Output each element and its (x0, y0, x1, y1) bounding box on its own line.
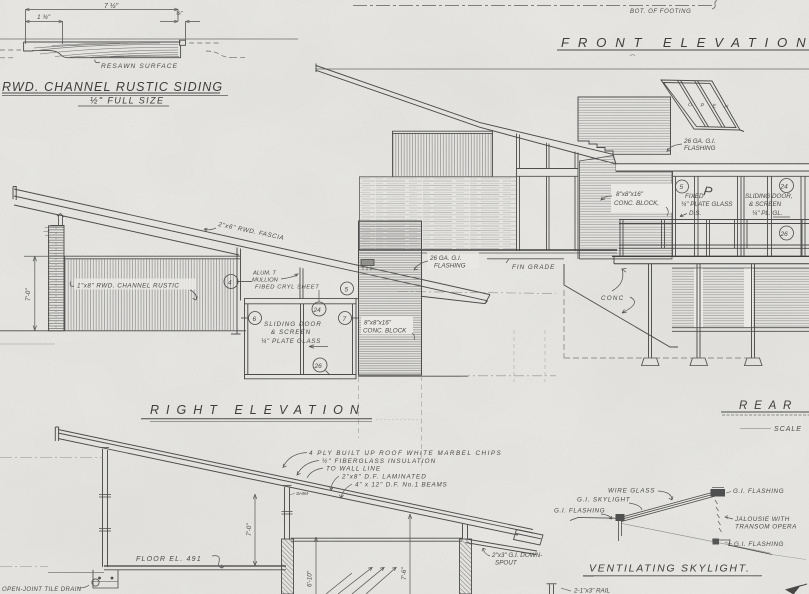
svg-text:MULLION: MULLION (252, 278, 279, 284)
svg-text:BOT. OF FOOTING: BOT. OF FOOTING (630, 9, 691, 15)
svg-text:¼" PL. GL.: ¼" PL. GL. (752, 210, 783, 217)
svg-text:FIXED: FIXED (685, 193, 704, 200)
svg-text:FRONT ELEVATION: FRONT ELEVATION (561, 35, 809, 50)
svg-text:½" FULL SIZE: ½" FULL SIZE (90, 96, 164, 106)
svg-text:SPOUT: SPOUT (495, 560, 518, 567)
svg-text:24: 24 (780, 184, 789, 191)
svg-text:FLOOR EL. 491: FLOOR EL. 491 (136, 556, 202, 563)
svg-text:FIN GRADE: FIN GRADE (512, 264, 555, 271)
svg-text:4" x 12" D.F. No.1 BEAMS: 4" x 12" D.F. No.1 BEAMS (355, 482, 448, 489)
svg-text:SCALE: SCALE (774, 426, 802, 433)
svg-text:2"x3" G.I. DOWN-: 2"x3" G.I. DOWN- (491, 552, 542, 559)
svg-text:G.I. SKYLIGHT: G.I. SKYLIGHT (577, 497, 631, 504)
svg-text:¼" PLATE GLASS: ¼" PLATE GLASS (681, 201, 733, 208)
svg-text:26: 26 (780, 231, 789, 238)
svg-text:7'-0": 7'-0" (246, 523, 253, 536)
svg-text:2-1"x3" RAIL: 2-1"x3" RAIL (573, 588, 610, 594)
svg-text:& SCREEN: & SCREEN (749, 201, 782, 208)
svg-text:G.I. FLASHING: G.I. FLASHING (554, 508, 605, 515)
svg-text:REAR: REAR (739, 400, 798, 412)
svg-text:SLIDING DOOR: SLIDING DOOR (264, 321, 322, 328)
svg-text:5: 5 (345, 287, 349, 294)
svg-text:G.I. FLASHING: G.I. FLASHING (733, 488, 784, 495)
svg-text:7: 7 (343, 316, 347, 323)
svg-text:½" FIBERGLASS INSULATION: ½" FIBERGLASS INSULATION (322, 457, 436, 465)
svg-text:8"x8"x16": 8"x8"x16" (616, 191, 644, 198)
svg-text:26: 26 (314, 363, 323, 370)
svg-text:4 PLY BUILT UP ROOF WHITE MAR: 4 PLY BUILT UP ROOF WHITE MARBEL CHIPS (309, 450, 502, 457)
svg-text:VENTILATING SKYLIGHT.: VENTILATING SKYLIGHT. (589, 563, 751, 575)
svg-text:RESAWN SURFACE: RESAWN SURFACE (101, 63, 178, 70)
svg-text:5: 5 (680, 184, 684, 191)
svg-text:4: 4 (228, 280, 232, 287)
svg-text:TO WALL LINE: TO WALL LINE (326, 466, 381, 473)
svg-text:& SCREEN: & SCREEN (271, 329, 311, 336)
svg-text:SHIM: SHIM (296, 491, 308, 497)
svg-text:FIBED CRYL SHEET: FIBED CRYL SHEET (255, 285, 319, 291)
svg-text:8"x8"x16": 8"x8"x16" (364, 320, 392, 327)
svg-text:D.S.: D.S. (689, 210, 701, 217)
svg-text:7'-0": 7'-0" (25, 288, 32, 301)
svg-text:RWD. CHANNEL RUSTIC SIDING: RWD. CHANNEL RUSTIC SIDING (2, 80, 223, 94)
svg-text:⅜": ⅜" (176, 11, 183, 17)
svg-text:FLASHING: FLASHING (434, 263, 466, 270)
svg-text:26 GA. G.I.: 26 GA. G.I. (429, 255, 462, 262)
svg-text:RIGHT ELEVATION: RIGHT ELEVATION (150, 403, 366, 417)
svg-text:CONC: CONC (601, 295, 624, 302)
svg-text:WIRE GLASS: WIRE GLASS (608, 488, 655, 495)
svg-text:TRANSOM OPERA: TRANSOM OPERA (735, 524, 797, 531)
svg-text:SLIDING DOOR,: SLIDING DOOR, (745, 193, 793, 200)
svg-text:6: 6 (253, 316, 257, 323)
svg-text:JALOUSIE WITH: JALOUSIE WITH (734, 516, 790, 523)
svg-text:1 ¾": 1 ¾" (37, 14, 51, 21)
svg-text:FLASHING: FLASHING (684, 145, 716, 152)
svg-text:¼" PLATE GLASS: ¼" PLATE GLASS (261, 338, 321, 345)
svg-text:CONC. BLOCK,: CONC. BLOCK, (614, 200, 659, 207)
svg-text:2"x8" D.F. LAMINATED: 2"x8" D.F. LAMINATED (341, 474, 427, 481)
svg-text:7 ½": 7 ½" (104, 2, 119, 10)
svg-text:7'-6": 7'-6" (401, 567, 408, 580)
svg-text:6'-10": 6'-10" (307, 570, 314, 587)
svg-text:OPEN-JOINT TILE DRAIN: OPEN-JOINT TILE DRAIN (2, 587, 82, 593)
svg-text:G.I. FLASHING: G.I. FLASHING (734, 541, 784, 548)
svg-text:CONC. BLOCK: CONC. BLOCK (363, 328, 407, 335)
svg-text:26 GA. G.I.: 26 GA. G.I. (683, 138, 716, 145)
svg-text:ALUM. T: ALUM. T (252, 271, 276, 277)
svg-text:24: 24 (313, 307, 322, 314)
svg-text:1"x8" RWD. CHANNEL RUSTIC: 1"x8" RWD. CHANNEL RUSTIC (77, 283, 179, 290)
